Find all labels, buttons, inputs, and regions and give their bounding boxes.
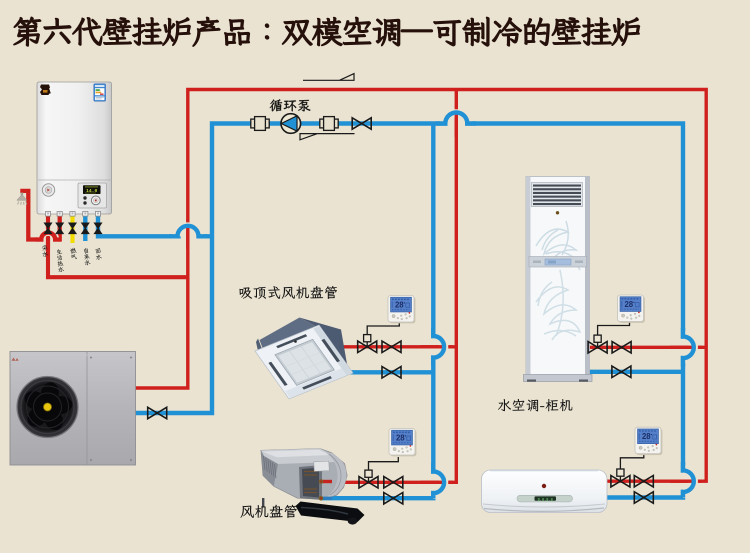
svg-text:28: 28 [395,301,404,310]
svg-text:28: 28 [642,432,651,441]
svg-text:28: 28 [396,434,405,443]
svg-text:8.8.8.8: 8.8.8.8 [538,498,553,502]
svg-text:28: 28 [624,300,633,309]
